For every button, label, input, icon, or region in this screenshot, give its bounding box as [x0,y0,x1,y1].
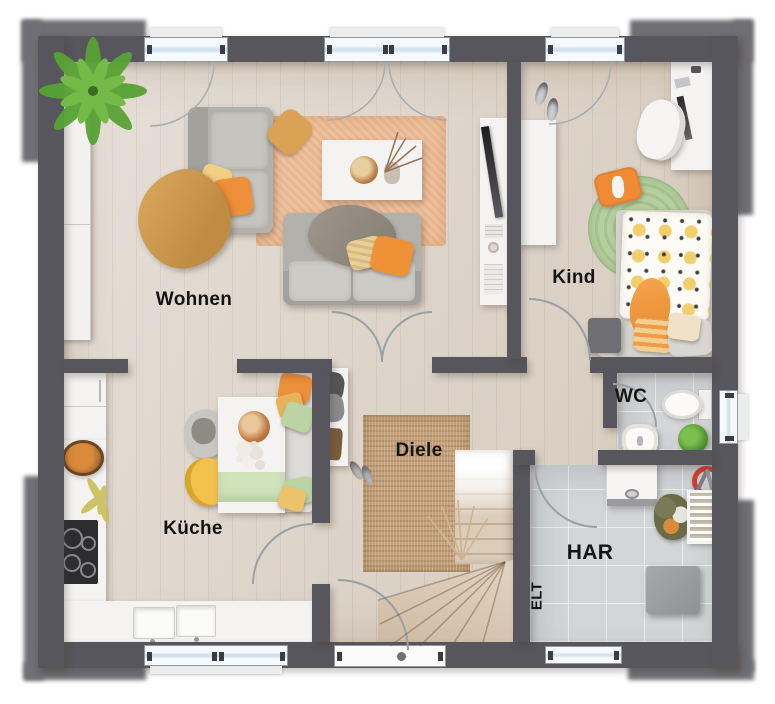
window-living-terrace-double [324,37,450,62]
wall-exterior-right [712,36,738,668]
wall-kitchen-hall-lower [312,584,330,642]
wall-living-kitchen-left [64,359,128,373]
wall-utility-door-jamb [513,450,535,465]
fridge-handle [99,380,101,402]
toilet-bowl [662,390,702,419]
washer-door [625,489,639,499]
kitchen-counter-bottom [64,601,312,643]
sink-basin-right [176,605,216,637]
window-utility [545,646,622,664]
desk-lamp [691,66,701,73]
room-label-utility: HAR [567,541,613,565]
bunny-toy [611,176,625,199]
candle [488,242,499,253]
door-handle [397,652,406,661]
window-child [545,37,625,62]
books-stack [485,224,503,238]
deco-bowl [350,156,378,184]
floor-plan: Wohnen Kind Küche Diele WC HAR ELT [0,0,775,704]
coffee-table [322,140,422,200]
room-label-wc: WC [615,386,647,408]
tv-lowboard [480,118,508,305]
keyboard [674,77,691,89]
toilet [662,388,712,421]
window-sill [738,394,748,440]
room-label-living: Wohnen [156,289,232,311]
dining-table [218,397,285,513]
heat-pump-unit [646,566,700,614]
wall-exterior-left [38,36,64,668]
tv-screen [481,126,503,218]
entrance-door [334,645,446,667]
room-label-child: Kind [552,267,595,289]
room-label-electrical: ELT [529,582,546,610]
white-flowers [236,441,252,457]
table-runner-green [218,472,285,502]
window-wc [719,390,738,444]
washer-control-strip [607,499,657,506]
room-label-hall: Diele [396,440,443,462]
window-living-left [144,37,228,62]
vase [384,162,400,184]
bed-stool [588,318,621,353]
wall-kitchen-hall-upper [312,373,330,523]
staircase-upper-flight [455,450,513,564]
copper-bowl [238,411,270,443]
wall-living-hall [432,357,527,373]
window-kitchen [144,645,288,666]
child-wardrobe [517,120,556,245]
wall-living-kitchen-right [237,359,332,373]
sink-basin-left [133,607,175,639]
books-stack-2 [484,264,503,294]
wall-hall-utility [513,450,530,642]
hallway-rug [363,415,470,572]
wall-living-child [507,62,521,359]
wall-child-wc [590,357,712,373]
room-label-kitchen: Küche [163,518,223,540]
bed-pillow-cream [666,312,701,342]
washing-machine [607,461,657,506]
fruit-bowl [62,440,104,476]
wc-faucet [637,436,643,446]
wall-wc-utility [598,450,712,465]
